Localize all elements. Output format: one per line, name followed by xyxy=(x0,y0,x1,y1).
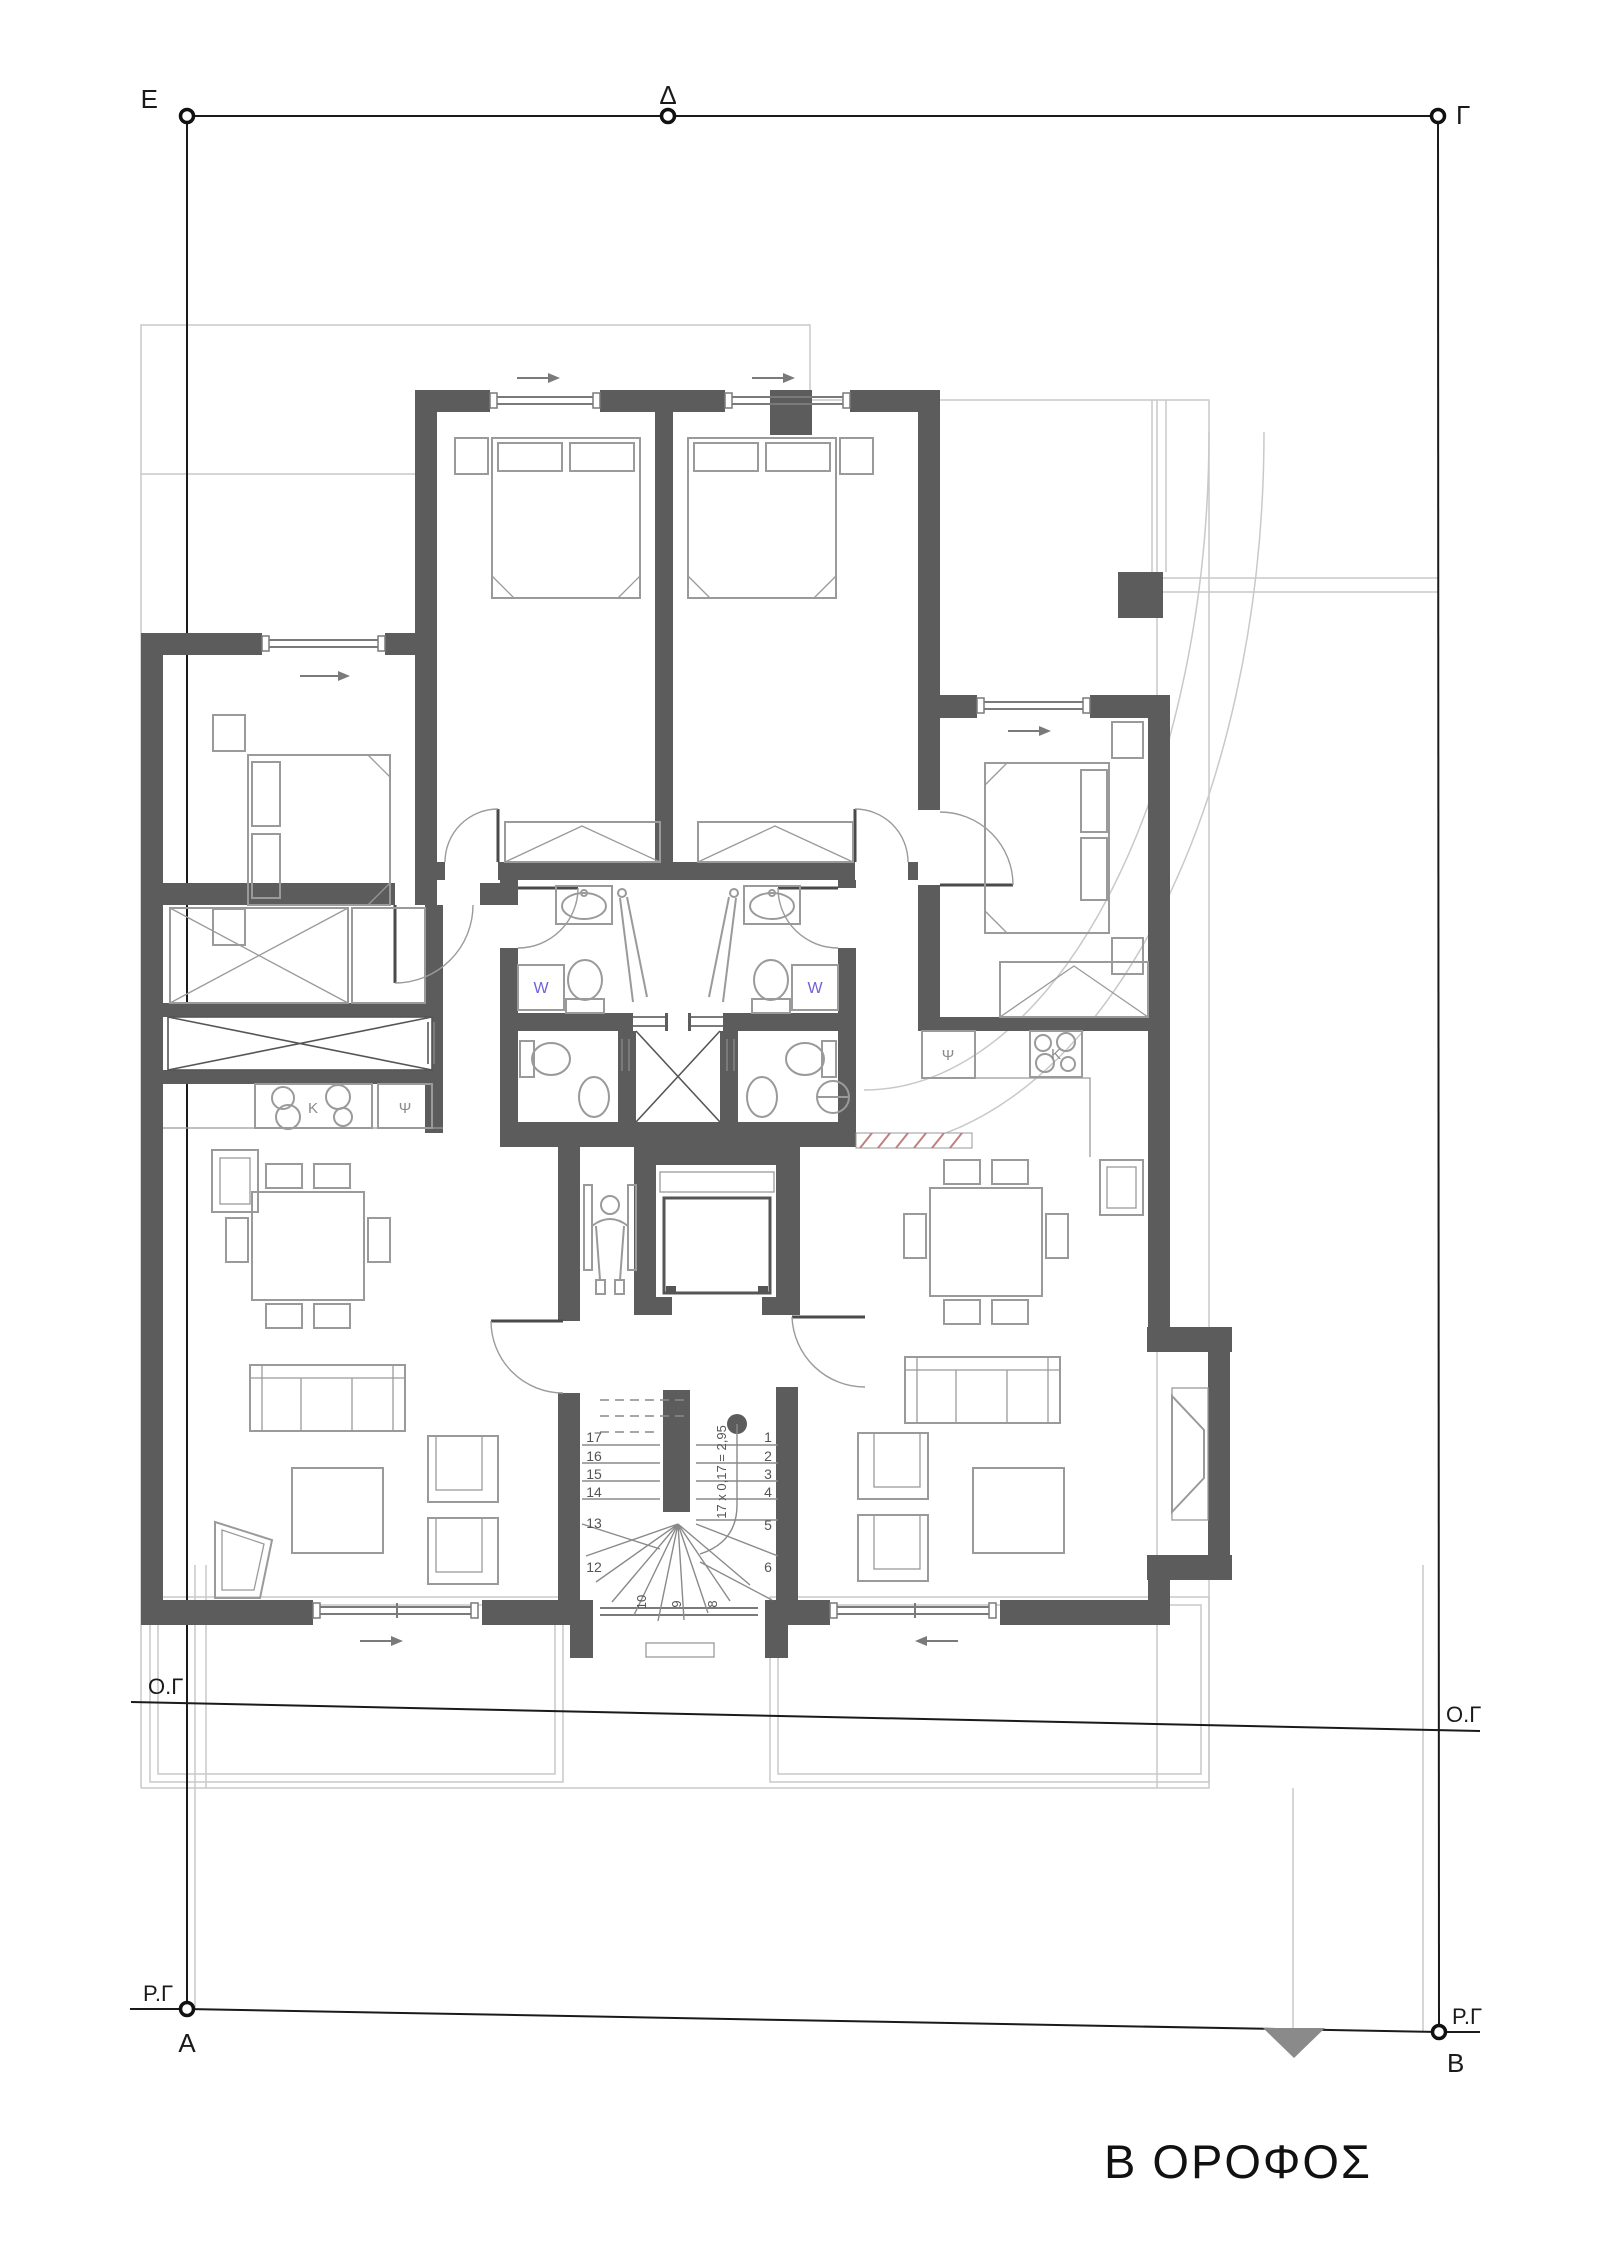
marker-label-d: Δ xyxy=(659,80,676,110)
armchair xyxy=(428,1436,498,1502)
terrace-column xyxy=(1118,572,1163,618)
fridge-label: Ψ xyxy=(942,1047,955,1064)
step-number: 6 xyxy=(764,1559,772,1575)
step-number: 5 xyxy=(764,1517,772,1533)
entrance-arrow xyxy=(1263,2028,1325,2058)
closet-left xyxy=(170,908,425,1003)
elevator-counterweight xyxy=(660,1172,774,1192)
elevator xyxy=(634,1147,800,1315)
step-number: 8 xyxy=(705,1600,720,1607)
bed xyxy=(455,438,640,598)
shower-lines xyxy=(620,897,647,1002)
wardrobe xyxy=(698,822,853,862)
step-number: 13 xyxy=(586,1515,602,1531)
marker-G xyxy=(1432,110,1445,123)
window xyxy=(830,1603,996,1646)
window xyxy=(313,1603,478,1646)
wc-sink xyxy=(579,1077,609,1117)
drawing-title: Β ΟΡΟΦΟΣ xyxy=(1104,2134,1524,2189)
marker-label-e: Ε xyxy=(141,84,158,114)
step-number: 2 xyxy=(764,1448,772,1464)
sofa xyxy=(905,1357,1060,1423)
marker-label-b: Β xyxy=(1447,2048,1464,2078)
stair-core-wall xyxy=(663,1390,690,1512)
stair-formula: 17 x 0,17 = 2,95 xyxy=(714,1425,729,1519)
marker-label-a: Α xyxy=(178,2028,196,2058)
armchair xyxy=(858,1433,928,1499)
toilet xyxy=(568,960,602,1000)
step-number: 14 xyxy=(586,1484,602,1500)
entry-step xyxy=(646,1643,714,1657)
elevator-cab xyxy=(664,1198,770,1293)
marker-A xyxy=(181,2003,194,2016)
stove-label: Κ xyxy=(308,1100,318,1117)
building-line-label-left: Ο.Γ xyxy=(148,1674,183,1699)
armchair xyxy=(428,1518,498,1584)
armchair xyxy=(858,1515,928,1581)
step-number: 4 xyxy=(764,1484,772,1500)
building-line-label-right: Ο.Γ xyxy=(1446,1702,1481,1727)
window xyxy=(490,373,600,408)
step-number: 3 xyxy=(764,1466,772,1482)
shaft-center xyxy=(636,1031,720,1122)
bed xyxy=(985,722,1143,974)
marker-E xyxy=(181,110,194,123)
bed xyxy=(688,438,873,598)
coffee-table xyxy=(292,1468,383,1553)
marker-label-g: Γ xyxy=(1456,100,1470,130)
window xyxy=(977,698,1090,736)
street-line-label-left: Ρ.Γ xyxy=(143,1981,173,2006)
marker-B xyxy=(1433,2026,1446,2039)
shower-head xyxy=(618,889,626,897)
step-number: 15 xyxy=(586,1466,602,1482)
step-number: 9 xyxy=(669,1600,684,1607)
lintel-hatch xyxy=(856,1133,972,1148)
street-line-label-right: Ρ.Γ xyxy=(1452,2004,1482,2029)
floor-plan-drawing: Ε Δ Γ Α Β Ο.Γ Ο.Γ Ρ.Γ Ρ.Γ xyxy=(0,0,1600,2261)
coffee-table xyxy=(973,1468,1064,1553)
washer-label-left: W xyxy=(533,980,549,997)
bed xyxy=(213,715,390,945)
wardrobe xyxy=(1000,962,1148,1017)
step-number: 16 xyxy=(586,1448,602,1464)
wardrobe xyxy=(505,822,660,862)
wheelchair-icon xyxy=(584,1185,636,1294)
wc-toilet xyxy=(532,1043,570,1075)
step-number: 17 xyxy=(586,1429,602,1445)
living-left xyxy=(215,1164,498,1598)
washer-label-right: W xyxy=(807,980,823,997)
stove-label: Κ xyxy=(1051,1046,1061,1063)
sofa xyxy=(250,1365,405,1431)
shaft-left xyxy=(168,1017,434,1070)
fireplace xyxy=(1172,1388,1208,1520)
window xyxy=(262,636,385,681)
fridge-label: Ψ xyxy=(399,1100,412,1117)
step-number: 12 xyxy=(586,1559,602,1575)
building-line xyxy=(131,1702,1480,1731)
bedroom-furniture xyxy=(213,438,1148,1017)
dining-table xyxy=(904,1160,1068,1324)
step-number: 10 xyxy=(634,1595,649,1609)
marker-D xyxy=(662,110,675,123)
corner-unit xyxy=(215,1522,272,1598)
step-number: 1 xyxy=(764,1429,772,1445)
